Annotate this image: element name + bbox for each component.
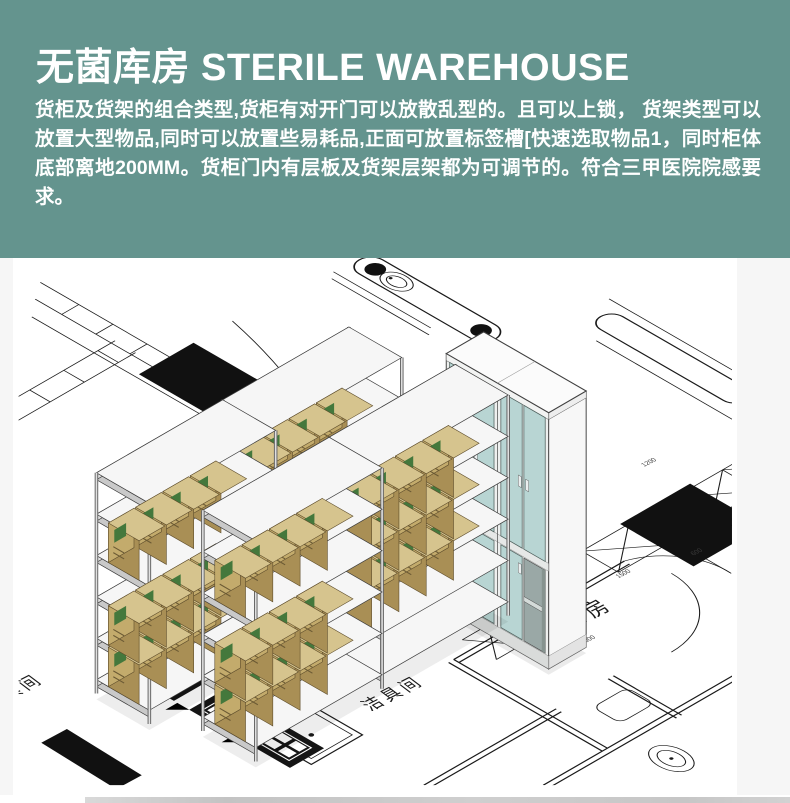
header-banner: 无菌库房 STERILE WAREHOUSE 货柜及货架的组合类型,货柜有对开门… (0, 0, 790, 258)
page-title: 无菌库房 STERILE WAREHOUSE (36, 36, 630, 91)
dim-text: 1200 (640, 457, 659, 468)
round-basin-symbol (640, 740, 703, 776)
isometric-warehouse-illustration: 护工房 洁具间 污具间 长X宽X数量设备 600 3550 2000 1500 … (0, 258, 790, 795)
next-section-edge (85, 797, 790, 803)
right-margin (737, 258, 790, 795)
black-band (41, 729, 142, 789)
dim-text: 1500 (614, 569, 633, 580)
warehouse-scene-svg: 护工房 洁具间 污具间 长X宽X数量设备 600 3550 2000 1500 … (0, 258, 790, 795)
product-page-section: 无菌库房 STERILE WAREHOUSE 货柜及货架的组合类型,货柜有对开门… (0, 0, 790, 803)
page-description: 货柜及货架的组合类型,货柜有对开门可以放散乱型的。且可以上锁， 货架类型可以放置… (35, 96, 761, 212)
left-margin (0, 258, 13, 795)
shelving-racks (96, 327, 508, 767)
